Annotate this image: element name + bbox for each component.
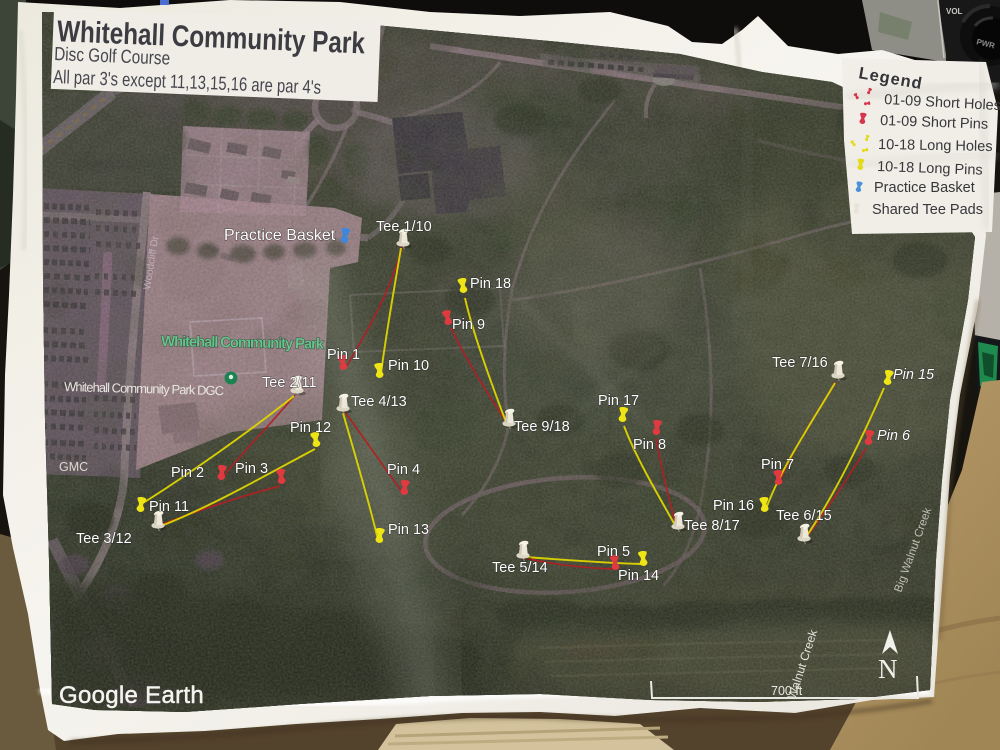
svg-text:Pin 18: Pin 18 xyxy=(470,276,511,292)
svg-text:Pin 6: Pin 6 xyxy=(877,428,911,444)
svg-text:N: N xyxy=(878,654,898,684)
svg-text:Tee 8/17: Tee 8/17 xyxy=(684,518,740,534)
svg-text:10-18 Long Holes: 10-18 Long Holes xyxy=(878,137,993,155)
svg-text:Pin 12: Pin 12 xyxy=(290,420,331,436)
svg-text:Tee 1/10: Tee 1/10 xyxy=(376,219,432,235)
svg-text:Pin 3: Pin 3 xyxy=(235,461,268,477)
svg-text:Shared Tee Pads: Shared Tee Pads xyxy=(872,202,983,218)
svg-text:Pin 5: Pin 5 xyxy=(597,544,630,560)
svg-text:Tee 6/15: Tee 6/15 xyxy=(776,508,832,524)
svg-text:Pin 2: Pin 2 xyxy=(171,465,204,481)
svg-text:Tee 9/18: Tee 9/18 xyxy=(514,419,570,435)
svg-text:Tee 4/13: Tee 4/13 xyxy=(351,394,407,410)
svg-text:Pin 15: Pin 15 xyxy=(893,367,935,383)
svg-text:Tee 2/11: Tee 2/11 xyxy=(262,375,317,391)
svg-text:Google Earth: Google Earth xyxy=(59,682,204,709)
svg-text:Pin 11: Pin 11 xyxy=(149,499,189,515)
svg-text:Pin 7: Pin 7 xyxy=(761,457,794,473)
svg-text:Tee 7/16: Tee 7/16 xyxy=(772,355,828,371)
svg-text:Whitehall Community Park: Whitehall Community Park xyxy=(161,333,325,353)
svg-text:Pin 16: Pin 16 xyxy=(713,498,754,514)
svg-text:Pin 4: Pin 4 xyxy=(387,462,420,478)
svg-text:Tee 3/12: Tee 3/12 xyxy=(76,531,132,547)
svg-text:Pin 9: Pin 9 xyxy=(452,317,485,333)
svg-text:Practice Basket: Practice Basket xyxy=(874,180,975,196)
svg-text:Practice Basket: Practice Basket xyxy=(224,227,336,244)
svg-text:Pin 8: Pin 8 xyxy=(633,437,666,453)
svg-text:GMC: GMC xyxy=(59,460,88,474)
svg-text:Pin 13: Pin 13 xyxy=(388,522,429,538)
svg-text:Pin 1: Pin 1 xyxy=(327,347,360,363)
svg-text:Pin 10: Pin 10 xyxy=(388,358,429,374)
svg-text:VOL: VOL xyxy=(946,7,963,16)
svg-text:Tee 5/14: Tee 5/14 xyxy=(492,560,548,576)
svg-text:Pin 14: Pin 14 xyxy=(618,568,659,584)
svg-text:Pin 17: Pin 17 xyxy=(598,393,639,409)
